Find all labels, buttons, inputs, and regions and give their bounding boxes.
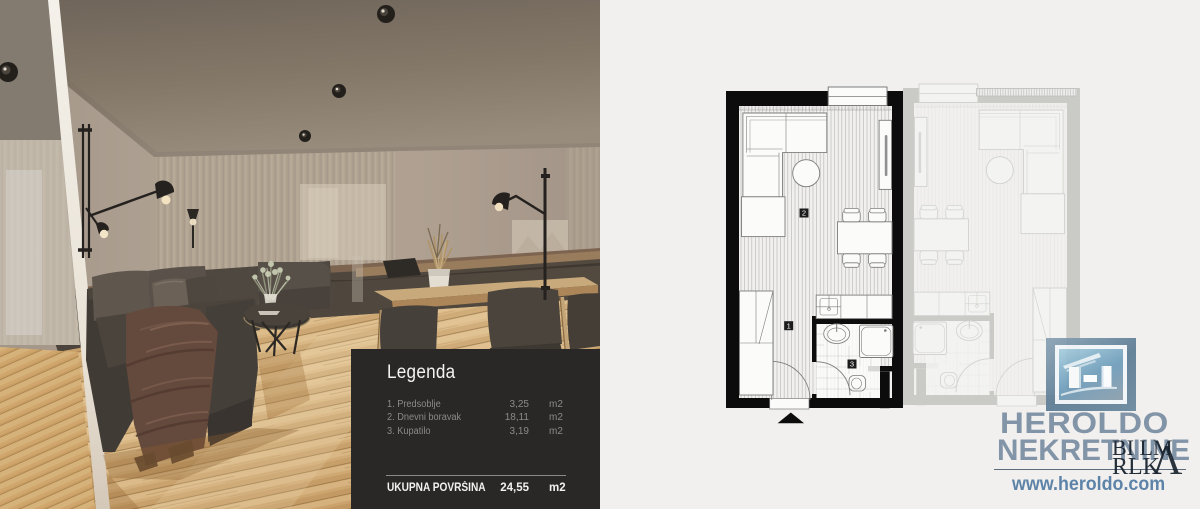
svg-text:2: 2: [802, 209, 806, 218]
svg-text:1: 1: [787, 321, 791, 330]
svg-text:3: 3: [850, 360, 854, 369]
